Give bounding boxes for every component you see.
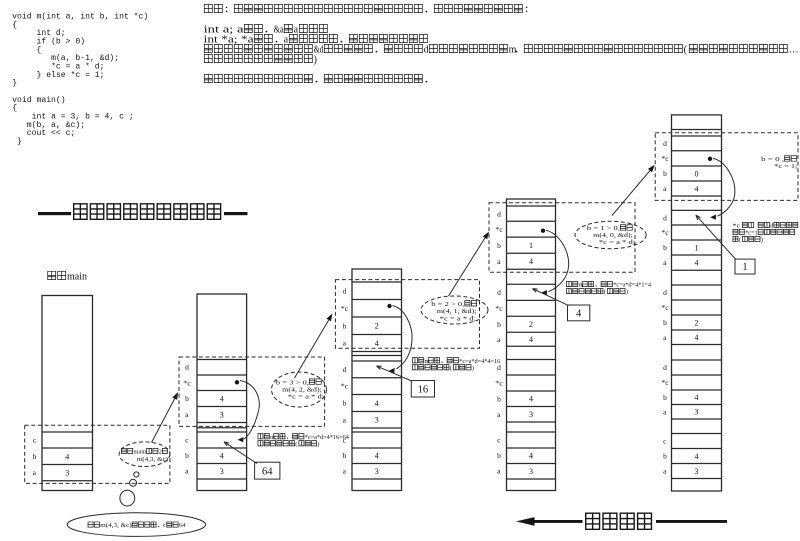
svg-text:*c=a*d=4*4=16: *c=a*d=4*4=16 [459,358,500,365]
svg-text:a: a [497,410,501,419]
svg-text:b: b [663,243,667,252]
svg-text:m: m [509,45,517,56]
svg-text:m: m [425,358,430,365]
svg-text:4: 4 [695,393,699,402]
svg-text:): ) [472,365,474,372]
svg-text:1: 1 [529,241,533,250]
svg-text:3: 3 [529,410,533,419]
svg-text:d: d [343,286,347,295]
svg-text:b: b [185,451,189,460]
svg-text:a: a [343,467,347,476]
svg-text:*c: *c [661,154,669,163]
svg-text:d: d [343,365,347,374]
svg-text:b: b [663,318,667,327]
svg-text:*c: *c [661,303,669,312]
svg-text:4: 4 [375,451,379,460]
svg-text:b = 0 ,: b = 0 , [761,156,785,163]
svg-text:2: 2 [375,322,379,331]
svg-text:void m(int a, int b, int *c): void m(int a, int b, int *c) [12,13,148,22]
svg-text:*c: *c [495,379,503,388]
svg-text:*c: *c [341,382,349,391]
svg-text:void main(): void main() [12,96,65,105]
svg-text:4: 4 [529,335,533,344]
svg-text:(: ( [450,365,452,372]
svg-text:4: 4 [695,452,699,461]
svg-text:d: d [185,363,189,372]
svg-text:a: a [663,258,667,267]
svg-text:3: 3 [695,408,699,417]
svg-text:*c: *c [661,378,669,387]
svg-text:1: 1 [695,243,699,252]
svg-text:2: 2 [695,318,699,327]
svg-text:}: } [12,137,22,146]
svg-text:{: { [12,21,17,30]
svg-text:{: { [12,104,17,113]
svg-text:3: 3 [65,468,69,477]
svg-text:3: 3 [375,416,379,425]
svg-text:a: a [284,35,289,46]
svg-text:2: 2 [159,449,162,456]
svg-text:…: … [789,45,799,56]
svg-text:main: main [67,272,87,283]
svg-text:a: a [294,25,299,36]
svg-text:a: a [185,410,189,419]
svg-text:16: 16 [418,384,429,395]
svg-text:4: 4 [695,258,699,267]
svg-text:b: b [185,394,189,403]
svg-text:b: b [33,452,37,461]
svg-text:3: 3 [220,467,224,476]
svg-text:4: 4 [375,339,379,348]
svg-text:b: b [497,241,501,250]
svg-text:3: 3 [220,410,224,419]
svg-text:} else *c = 1;: } else *c = 1; [37,71,105,80]
svg-text:c: c [33,436,37,445]
svg-text:4: 4 [695,184,699,193]
svg-text:64: 64 [262,466,273,477]
svg-text:*c = a * d;: *c = a * d; [440,315,477,322]
svg-text:m: m [579,282,584,289]
svg-text:a: a [497,467,501,476]
svg-text:(: ( [739,237,741,244]
svg-text:int *a; *a: int *a; *a [204,35,255,46]
svg-text:c: c [185,436,189,445]
svg-text:b = 2 > 0,: b = 2 > 0, [431,301,464,308]
svg-text:*c=1: *c=1 [745,230,758,237]
svg-text:): ) [317,441,319,448]
svg-text:d: d [663,288,667,297]
svg-text:a: a [185,467,189,476]
svg-text:*c=a*d=4*1=4: *c=a*d=4*1=4 [613,282,652,289]
svg-text:b: b [497,394,501,403]
svg-text:a: a [497,257,501,266]
svg-text:m(4,3, &c): m(4,3, &c) [100,522,131,529]
svg-text:m(4,3, &c): m(4,3, &c) [137,456,169,463]
svg-text:a: a [343,415,347,424]
svg-text:b: b [497,320,501,329]
svg-text:m(4, 0, &d);: m(4, 0, &d); [593,232,633,239]
svg-text:*c: *c [661,228,669,237]
svg-text:(: ( [295,441,297,448]
svg-text:): ) [761,237,763,244]
svg-text:3: 3 [529,467,533,476]
svg-text:4: 4 [65,452,69,461]
svg-text:d: d [424,45,429,56]
svg-text:m(4, 2, &d);: m(4, 2, &d); [282,386,322,393]
svg-text:m(4, 1, &d);: m(4, 1, &d); [437,308,477,315]
svg-text:d: d [663,139,667,148]
svg-text:*c: *c [733,223,742,230]
svg-text:m: m [270,434,275,441]
svg-text:*c = 1;: *c = 1; [774,163,797,170]
svg-text:d: d [663,363,667,372]
svg-text:*c: *c [341,304,349,313]
svg-text:4: 4 [695,333,699,342]
svg-text:a: a [663,407,667,416]
svg-text:4: 4 [529,451,533,460]
svg-text:c: c [497,436,501,445]
svg-text:64: 64 [179,522,186,529]
svg-text:(: ( [684,45,688,56]
svg-text:{: { [12,46,41,55]
svg-text:4: 4 [375,399,379,408]
svg-text:}: } [12,79,17,88]
svg-text:if (b > 0): if (b > 0) [37,38,86,47]
svg-text:b: b [663,452,667,461]
svg-text:a: a [663,333,667,342]
svg-text:4: 4 [220,394,224,403]
svg-text:4: 4 [529,257,533,266]
svg-text:d: d [663,213,667,222]
svg-text:b = 3 > 0,: b = 3 > 0, [276,379,309,386]
svg-text:&a: &a [274,25,284,36]
svg-text:*c = a * d;: *c = a * d; [288,393,325,400]
svg-text:a: a [663,467,667,476]
svg-text:b: b [343,451,347,460]
svg-text:b: b [497,451,501,460]
svg-text:): ) [626,289,628,296]
svg-text:main: main [134,449,147,456]
svg-text:*c = a * d;: *c = a * d; [599,239,636,246]
svg-text:*c=a*d=4*16=64: *c=a*d=4*16=64 [305,434,350,441]
svg-text:a: a [33,468,37,477]
svg-text:3: 3 [375,467,379,476]
svg-text:*c: *c [495,225,503,234]
svg-text:*c: *c [183,378,191,387]
svg-text:a: a [343,339,347,348]
svg-text:): ) [314,55,317,66]
svg-text:2: 2 [529,320,533,329]
svg-text:4: 4 [220,451,224,460]
svg-text:3: 3 [695,467,699,476]
svg-text:a: a [497,335,501,344]
svg-text:a: a [663,184,667,193]
svg-text:d: d [497,288,501,297]
svg-text:4: 4 [576,309,582,320]
svg-text:0: 0 [695,169,699,178]
svg-text:b: b [663,169,667,178]
svg-text:d: d [497,209,501,218]
svg-text:*c: *c [495,304,503,313]
svg-text:b: b [343,321,347,330]
svg-text:4: 4 [529,395,533,404]
svg-text:b: b [663,393,667,402]
svg-text:cout << c;: cout << c; [27,129,76,138]
svg-text:(: ( [604,289,606,296]
svg-text:c: c [663,437,667,446]
svg-text:b: b [343,399,347,408]
svg-text:b = 1 > 0,: b = 1 > 0, [587,225,620,232]
svg-text:1: 1 [742,262,747,273]
svg-text:c: c [163,522,166,529]
